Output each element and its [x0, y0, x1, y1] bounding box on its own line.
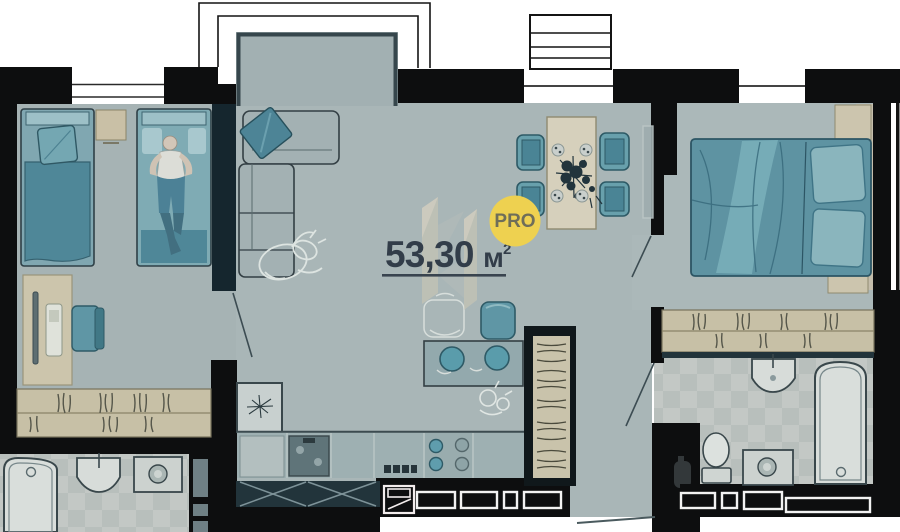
svg-text:PRO: PRO	[494, 211, 535, 232]
